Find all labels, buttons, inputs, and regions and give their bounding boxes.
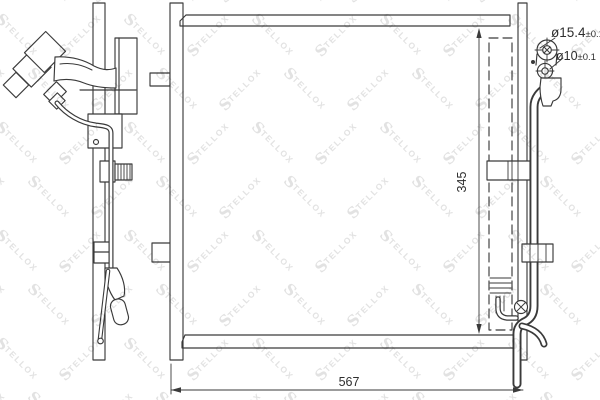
arrow-up [476,28,481,38]
height-dimension-text: 345 [455,172,469,193]
drier-body [489,38,512,330]
dimension-height: 345 [455,28,482,334]
condenser-technical-drawing: 345 567 ø15.4±0.1 ø10±0.1 [0,0,600,400]
core-tab-lower [152,243,172,262]
technical-drawing-canvas: 345 567 ø15.4±0.1 ø10±0.1 STELLOXSTELLOX… [0,0,600,400]
desiccant-hatch [490,278,511,293]
core-left-side-plate [170,3,183,360]
core-tab-upper [150,73,170,86]
fitting-bracket [540,78,561,106]
arrow-left [171,387,181,392]
drier-pipe-clamp [487,161,530,180]
width-dimension-text: 567 [339,375,360,389]
pipe-end-cap [98,338,104,344]
bracket-upper-plate [115,38,137,114]
inlet-pipe [54,57,116,88]
fitting-hole [531,60,535,64]
core-bottom-header [182,335,518,348]
arrow-down [476,324,481,334]
dimension-width: 567 [171,364,523,394]
label-port-small: ø10±0.1 [550,49,596,69]
port-small-label: ø10±0.1 [556,49,596,63]
pipe-hook [109,297,130,326]
pipe-clamp-right [522,244,553,262]
port-large-label: ø15.4±0.1 [551,25,600,40]
core-top-header [180,15,510,26]
